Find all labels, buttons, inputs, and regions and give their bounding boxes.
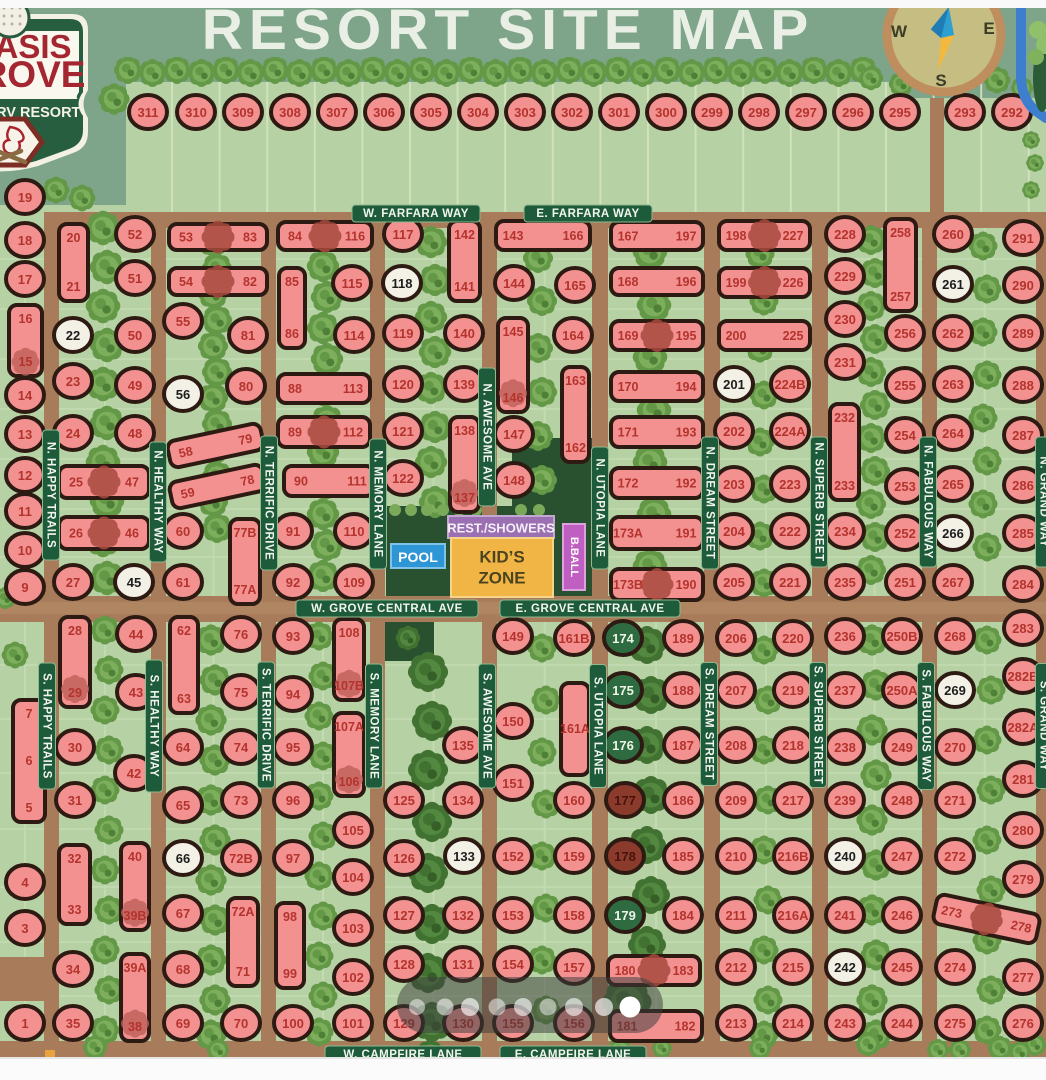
svg-text:115: 115 <box>342 276 363 291</box>
svg-text:45: 45 <box>127 575 141 590</box>
svg-text:29: 29 <box>68 686 82 700</box>
svg-text:46: 46 <box>125 527 139 541</box>
svg-text:55: 55 <box>176 314 190 329</box>
svg-text:167: 167 <box>618 230 639 244</box>
svg-text:141: 141 <box>454 280 475 294</box>
svg-text:17: 17 <box>18 272 32 287</box>
svg-text:243: 243 <box>834 1016 856 1031</box>
svg-text:59: 59 <box>180 485 197 502</box>
svg-text:110: 110 <box>344 524 365 539</box>
svg-text:270: 270 <box>944 740 966 755</box>
svg-text:217: 217 <box>782 793 804 808</box>
svg-text:15: 15 <box>19 355 33 369</box>
svg-text:35: 35 <box>66 1016 80 1031</box>
svg-text:5: 5 <box>26 801 33 815</box>
svg-text:E. FARFARA WAY: E. FARFARA WAY <box>536 208 639 220</box>
svg-text:310: 310 <box>185 105 207 120</box>
svg-text:62: 62 <box>177 624 191 638</box>
svg-text:209: 209 <box>725 793 747 808</box>
svg-text:171: 171 <box>618 426 639 440</box>
svg-text:14: 14 <box>18 388 33 403</box>
svg-text:173A: 173A <box>613 527 643 541</box>
svg-text:231: 231 <box>834 355 856 370</box>
svg-text:73: 73 <box>234 793 248 808</box>
svg-text:170: 170 <box>618 380 639 394</box>
svg-text:225: 225 <box>783 329 804 343</box>
svg-text:288: 288 <box>1012 378 1034 393</box>
svg-text:81: 81 <box>241 328 255 343</box>
svg-text:248: 248 <box>891 793 913 808</box>
svg-text:4: 4 <box>21 875 29 890</box>
svg-text:S. UTOPIA LANE: S. UTOPIA LANE <box>592 677 604 775</box>
svg-text:34: 34 <box>66 962 81 977</box>
svg-text:N. SUPERB STREET: N. SUPERB STREET <box>813 442 825 561</box>
svg-text:75: 75 <box>234 685 248 700</box>
svg-text:19: 19 <box>18 190 32 205</box>
svg-text:31: 31 <box>68 793 82 808</box>
svg-text:POOL: POOL <box>398 549 438 565</box>
svg-text:180: 180 <box>615 964 636 978</box>
svg-text:N. UTOPIA LANE: N. UTOPIA LANE <box>594 458 606 557</box>
svg-text:39A: 39A <box>124 961 147 975</box>
svg-text:143: 143 <box>503 229 524 243</box>
svg-text:265: 265 <box>942 477 964 492</box>
svg-text:76: 76 <box>234 627 248 642</box>
svg-text:11: 11 <box>18 504 32 519</box>
svg-text:263: 263 <box>942 377 964 392</box>
svg-text:306: 306 <box>373 105 395 120</box>
svg-text:271: 271 <box>944 793 966 808</box>
svg-text:16: 16 <box>19 312 33 326</box>
svg-text:152: 152 <box>502 849 524 864</box>
svg-text:63: 63 <box>177 692 191 706</box>
svg-text:284: 284 <box>1012 577 1034 592</box>
svg-text:238: 238 <box>834 740 856 755</box>
svg-text:52: 52 <box>128 227 142 242</box>
svg-text:179: 179 <box>614 908 636 923</box>
svg-text:137: 137 <box>454 491 475 505</box>
svg-text:275: 275 <box>944 1016 966 1031</box>
svg-text:47: 47 <box>125 476 139 490</box>
svg-text:255: 255 <box>894 378 916 393</box>
svg-text:214: 214 <box>782 1016 804 1031</box>
svg-text:295: 295 <box>889 105 911 120</box>
svg-text:250A: 250A <box>886 683 918 698</box>
svg-text:182: 182 <box>675 1020 696 1034</box>
svg-text:49: 49 <box>128 378 142 393</box>
svg-text:169: 169 <box>618 329 639 343</box>
svg-text:97: 97 <box>286 851 300 866</box>
svg-text:222: 222 <box>779 524 801 539</box>
svg-text:107A: 107A <box>334 720 364 734</box>
svg-text:172: 172 <box>618 477 639 491</box>
svg-text:N. HEALTHY WAY: N. HEALTHY WAY <box>152 450 164 553</box>
svg-text:300: 300 <box>655 105 677 120</box>
svg-text:N. AWESOME AVE: N. AWESOME AVE <box>481 384 493 491</box>
svg-text:80: 80 <box>239 379 253 394</box>
svg-text:240: 240 <box>834 849 856 864</box>
svg-text:261: 261 <box>942 277 964 292</box>
svg-text:27: 27 <box>66 575 80 590</box>
svg-text:98: 98 <box>283 910 297 924</box>
svg-text:266: 266 <box>942 526 964 541</box>
svg-text:213: 213 <box>725 1016 747 1031</box>
svg-text:139: 139 <box>453 377 475 392</box>
svg-text:66: 66 <box>176 851 190 866</box>
svg-text:65: 65 <box>176 798 190 813</box>
svg-text:42: 42 <box>127 766 141 781</box>
svg-text:237: 237 <box>834 683 856 698</box>
svg-text:286: 286 <box>1012 478 1034 493</box>
svg-text:244: 244 <box>891 1016 913 1031</box>
svg-text:43: 43 <box>129 685 143 700</box>
svg-text:258: 258 <box>890 226 911 240</box>
svg-text:109: 109 <box>343 575 365 590</box>
svg-text:202: 202 <box>723 424 745 439</box>
svg-text:254: 254 <box>894 428 916 443</box>
svg-text:W. GROVE CENTRAL AVE: W. GROVE CENTRAL AVE <box>311 603 463 615</box>
svg-text:241: 241 <box>834 908 856 923</box>
svg-text:32: 32 <box>68 852 82 866</box>
svg-text:190: 190 <box>676 578 697 592</box>
svg-text:160: 160 <box>563 793 585 808</box>
svg-text:96: 96 <box>286 793 300 808</box>
svg-text:N. TERRIFIC DRIVE: N. TERRIFIC DRIVE <box>263 446 275 561</box>
svg-text:307: 307 <box>326 105 348 120</box>
svg-text:158: 158 <box>563 908 585 923</box>
svg-text:226: 226 <box>783 276 804 290</box>
svg-text:285: 285 <box>1012 526 1034 541</box>
svg-text:163: 163 <box>565 374 586 388</box>
svg-text:S. DREAM STREET: S. DREAM STREET <box>703 668 715 780</box>
svg-text:106: 106 <box>339 775 360 789</box>
svg-text:205: 205 <box>723 575 745 590</box>
svg-text:95: 95 <box>286 740 300 755</box>
svg-text:28: 28 <box>68 624 82 638</box>
svg-text:3: 3 <box>21 921 28 936</box>
svg-text:267: 267 <box>942 575 964 590</box>
svg-text:67: 67 <box>176 906 190 921</box>
svg-text:274: 274 <box>944 960 966 975</box>
svg-text:KID’S: KID’S <box>479 548 524 567</box>
svg-text:79: 79 <box>237 431 254 448</box>
svg-text:9: 9 <box>21 580 28 595</box>
svg-text:58: 58 <box>178 444 195 461</box>
svg-text:260: 260 <box>942 227 964 242</box>
svg-text:56: 56 <box>176 387 190 402</box>
svg-text:108: 108 <box>339 626 360 640</box>
svg-text:251: 251 <box>894 575 916 590</box>
svg-text:185: 185 <box>672 849 694 864</box>
svg-text:S. SUPERB STREET: S. SUPERB STREET <box>812 666 824 785</box>
svg-text:162: 162 <box>565 441 586 455</box>
svg-text:216A: 216A <box>777 908 809 923</box>
svg-text:229: 229 <box>834 269 856 284</box>
svg-text:183: 183 <box>673 964 694 978</box>
svg-text:94: 94 <box>286 687 301 702</box>
svg-text:105: 105 <box>342 823 364 838</box>
svg-text:165: 165 <box>564 278 586 293</box>
svg-text:164: 164 <box>562 328 584 343</box>
svg-text:199: 199 <box>726 276 747 290</box>
svg-text:101: 101 <box>342 1016 364 1031</box>
svg-text:277: 277 <box>1012 970 1034 985</box>
svg-text:212: 212 <box>725 960 747 975</box>
svg-text:166: 166 <box>563 229 584 243</box>
svg-text:280: 280 <box>1012 823 1034 838</box>
svg-text:293: 293 <box>954 105 976 120</box>
svg-text:B.BALL: B.BALL <box>568 537 580 578</box>
svg-text:272: 272 <box>944 849 966 864</box>
svg-text:107B: 107B <box>334 679 364 693</box>
svg-text:249: 249 <box>891 740 913 755</box>
svg-text:93: 93 <box>286 629 300 644</box>
svg-text:91: 91 <box>286 524 300 539</box>
svg-text:33: 33 <box>68 903 82 917</box>
svg-text:246: 246 <box>891 908 913 923</box>
svg-text:70: 70 <box>234 1016 248 1031</box>
svg-text:50: 50 <box>128 328 142 343</box>
svg-text:308: 308 <box>279 105 301 120</box>
svg-text:299: 299 <box>701 105 723 120</box>
svg-text:252: 252 <box>894 526 916 541</box>
svg-text:60: 60 <box>176 524 190 539</box>
svg-text:135: 135 <box>452 738 474 753</box>
svg-text:147: 147 <box>503 427 525 442</box>
svg-text:153: 153 <box>502 908 524 923</box>
svg-text:220: 220 <box>782 631 804 646</box>
svg-text:262: 262 <box>942 326 964 341</box>
svg-text:221: 221 <box>779 575 801 590</box>
svg-text:247: 247 <box>891 849 913 864</box>
svg-text:149: 149 <box>502 629 524 644</box>
svg-text:ROVE: ROVE <box>0 54 85 95</box>
svg-text:150: 150 <box>502 714 524 729</box>
svg-text:64: 64 <box>176 740 191 755</box>
svg-text:200: 200 <box>726 329 747 343</box>
svg-text:291: 291 <box>1012 231 1034 246</box>
svg-text:297: 297 <box>795 105 817 120</box>
svg-text:296: 296 <box>842 105 864 120</box>
svg-text:189: 189 <box>672 631 694 646</box>
svg-text:138: 138 <box>454 424 475 438</box>
svg-text:121: 121 <box>392 424 414 439</box>
svg-text:18: 18 <box>18 233 32 248</box>
svg-text:51: 51 <box>128 271 142 286</box>
svg-text:131: 131 <box>452 957 474 972</box>
svg-text:77A: 77A <box>234 583 257 597</box>
svg-text:128: 128 <box>393 957 415 972</box>
svg-text:281: 281 <box>1012 772 1034 787</box>
svg-text:102: 102 <box>342 970 364 985</box>
svg-text:82: 82 <box>243 275 257 289</box>
svg-text:N. GRAND WAY: N. GRAND WAY <box>1038 456 1046 547</box>
svg-text:223: 223 <box>779 477 801 492</box>
svg-text:N. FABULOUS WAY: N. FABULOUS WAY <box>922 445 934 559</box>
svg-text:216B: 216B <box>777 849 808 864</box>
svg-text:85: 85 <box>285 275 299 289</box>
svg-text:90: 90 <box>294 475 308 489</box>
svg-text:12: 12 <box>18 468 32 483</box>
svg-text:99: 99 <box>283 967 297 981</box>
svg-text:173B: 173B <box>613 578 643 592</box>
svg-text:195: 195 <box>676 329 697 343</box>
svg-text:112: 112 <box>343 426 363 440</box>
svg-text:290: 290 <box>1012 278 1034 293</box>
svg-text:122: 122 <box>392 471 414 486</box>
svg-text:206: 206 <box>725 631 747 646</box>
svg-text:256: 256 <box>894 326 916 341</box>
svg-text:142: 142 <box>454 228 475 242</box>
svg-text:S: S <box>935 71 946 90</box>
svg-text:250B: 250B <box>886 629 917 644</box>
svg-text:111: 111 <box>347 475 367 489</box>
svg-text:287: 287 <box>1012 428 1034 443</box>
svg-text:279: 279 <box>1012 872 1034 887</box>
svg-text:168: 168 <box>618 275 639 289</box>
svg-text:133: 133 <box>453 849 475 864</box>
svg-text:218: 218 <box>782 738 804 753</box>
svg-text:10: 10 <box>18 543 32 558</box>
svg-text:207: 207 <box>725 683 747 698</box>
svg-text:69: 69 <box>176 1016 190 1031</box>
svg-text:125: 125 <box>393 793 415 808</box>
svg-text:178: 178 <box>614 849 636 864</box>
svg-text:25: 25 <box>69 476 83 490</box>
svg-text:40: 40 <box>128 850 142 864</box>
svg-text:144: 144 <box>503 276 525 291</box>
svg-text:302: 302 <box>561 105 583 120</box>
svg-text:289: 289 <box>1012 326 1034 341</box>
svg-text:68: 68 <box>176 962 190 977</box>
svg-text:S. GRAND WAY: S. GRAND WAY <box>1038 681 1046 772</box>
svg-text:61: 61 <box>176 575 190 590</box>
svg-text:119: 119 <box>393 326 414 341</box>
svg-text:154: 154 <box>502 957 524 972</box>
svg-text:72B: 72B <box>229 851 253 866</box>
svg-text:186: 186 <box>672 793 694 808</box>
svg-text:116: 116 <box>345 230 365 244</box>
svg-text:103: 103 <box>342 921 364 936</box>
svg-text:132: 132 <box>452 908 474 923</box>
svg-text:198: 198 <box>726 229 747 243</box>
svg-text:N. HAPPY TRAILS: N. HAPPY TRAILS <box>45 442 57 548</box>
svg-text:120: 120 <box>392 377 414 392</box>
svg-text:88: 88 <box>288 382 302 396</box>
svg-text:230: 230 <box>834 312 856 327</box>
svg-text:127: 127 <box>393 908 415 923</box>
svg-text:219: 219 <box>782 683 804 698</box>
svg-text:305: 305 <box>420 105 442 120</box>
svg-text:303: 303 <box>514 105 536 120</box>
svg-text:39B: 39B <box>124 909 147 923</box>
svg-text:104: 104 <box>342 870 364 885</box>
svg-text:174: 174 <box>612 631 634 646</box>
svg-text:157: 157 <box>563 960 585 975</box>
svg-text:151: 151 <box>502 776 524 791</box>
svg-text:114: 114 <box>344 328 366 343</box>
svg-text:ZONE: ZONE <box>478 569 525 588</box>
svg-text:1: 1 <box>21 1016 28 1031</box>
svg-text:197: 197 <box>676 230 697 244</box>
svg-text:215: 215 <box>782 960 804 975</box>
svg-text:N. MEMORY LANE: N. MEMORY LANE <box>372 450 384 557</box>
svg-text:84: 84 <box>288 230 302 244</box>
svg-text:S. HAPPY TRAILS: S. HAPPY TRAILS <box>41 673 53 779</box>
svg-text:311: 311 <box>138 105 159 120</box>
svg-text:193: 193 <box>676 426 697 440</box>
svg-text:239: 239 <box>834 793 856 808</box>
svg-text:161A: 161A <box>560 722 590 736</box>
svg-text:188: 188 <box>672 683 694 698</box>
svg-text:100: 100 <box>282 1016 304 1031</box>
svg-text:134: 134 <box>452 793 474 808</box>
svg-text:N. DREAM STREET: N. DREAM STREET <box>704 447 716 560</box>
svg-text:232: 232 <box>834 411 855 425</box>
svg-text:210: 210 <box>725 849 747 864</box>
svg-text:S. FABULOUS WAY: S. FABULOUS WAY <box>920 669 932 782</box>
svg-text:83: 83 <box>243 231 257 245</box>
svg-text:234: 234 <box>834 524 856 539</box>
svg-text:54: 54 <box>179 275 193 289</box>
svg-text:282A: 282A <box>1007 720 1039 735</box>
svg-text:126: 126 <box>393 851 415 866</box>
svg-text:77B: 77B <box>234 526 257 540</box>
svg-text:89: 89 <box>288 426 302 440</box>
svg-text:23: 23 <box>66 374 80 389</box>
svg-text:118: 118 <box>392 276 413 291</box>
svg-text:257: 257 <box>890 290 911 304</box>
svg-text:92: 92 <box>286 575 300 590</box>
svg-text:86: 86 <box>285 327 299 341</box>
svg-text:113: 113 <box>343 382 363 396</box>
svg-text:211: 211 <box>726 908 747 923</box>
svg-text:146: 146 <box>503 391 524 405</box>
svg-text:175: 175 <box>612 683 634 698</box>
svg-text:292: 292 <box>1001 105 1023 120</box>
svg-text:161B: 161B <box>558 631 589 646</box>
svg-text:S. TERRIFIC DRIVE: S. TERRIFIC DRIVE <box>260 668 272 782</box>
svg-text:6: 6 <box>26 754 33 768</box>
svg-text:276: 276 <box>1012 1016 1034 1031</box>
svg-text:233: 233 <box>834 479 855 493</box>
svg-text:283: 283 <box>1012 621 1034 636</box>
svg-text:304: 304 <box>467 105 489 120</box>
svg-text:227: 227 <box>783 229 804 243</box>
svg-text:S. HEALTHY WAY: S. HEALTHY WAY <box>148 675 160 778</box>
svg-text:44: 44 <box>129 627 144 642</box>
svg-text:194: 194 <box>676 380 697 394</box>
svg-text:191: 191 <box>676 527 697 541</box>
svg-text:235: 235 <box>834 575 856 590</box>
svg-text:224A: 224A <box>774 424 806 439</box>
svg-text:W. FARFARA WAY: W. FARFARA WAY <box>363 208 469 220</box>
svg-text:208: 208 <box>725 738 747 753</box>
svg-text:228: 228 <box>834 227 856 242</box>
svg-text:22: 22 <box>66 328 80 343</box>
svg-text:72A: 72A <box>232 905 255 919</box>
svg-text:E. GROVE CENTRAL AVE: E. GROVE CENTRAL AVE <box>515 603 664 615</box>
svg-text:117: 117 <box>393 227 414 242</box>
svg-text:38: 38 <box>128 1020 142 1034</box>
svg-text:48: 48 <box>128 426 142 441</box>
svg-text:74: 74 <box>234 740 249 755</box>
svg-text:184: 184 <box>672 908 694 923</box>
svg-text:7: 7 <box>26 707 33 721</box>
svg-text:269: 269 <box>944 683 966 698</box>
svg-text:24: 24 <box>66 426 81 441</box>
svg-text:148: 148 <box>503 473 525 488</box>
